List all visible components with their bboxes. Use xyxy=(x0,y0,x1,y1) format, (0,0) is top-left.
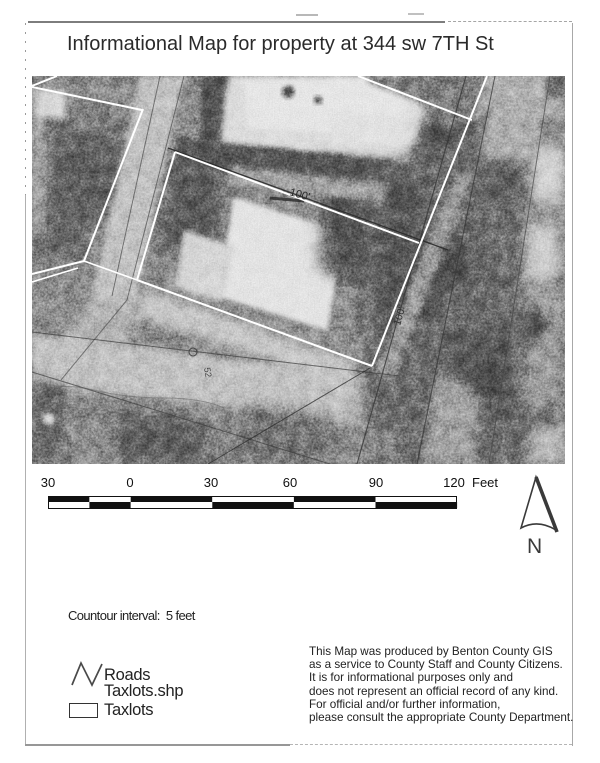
svg-text:52: 52 xyxy=(202,367,214,379)
svg-text:N: N xyxy=(527,535,542,556)
